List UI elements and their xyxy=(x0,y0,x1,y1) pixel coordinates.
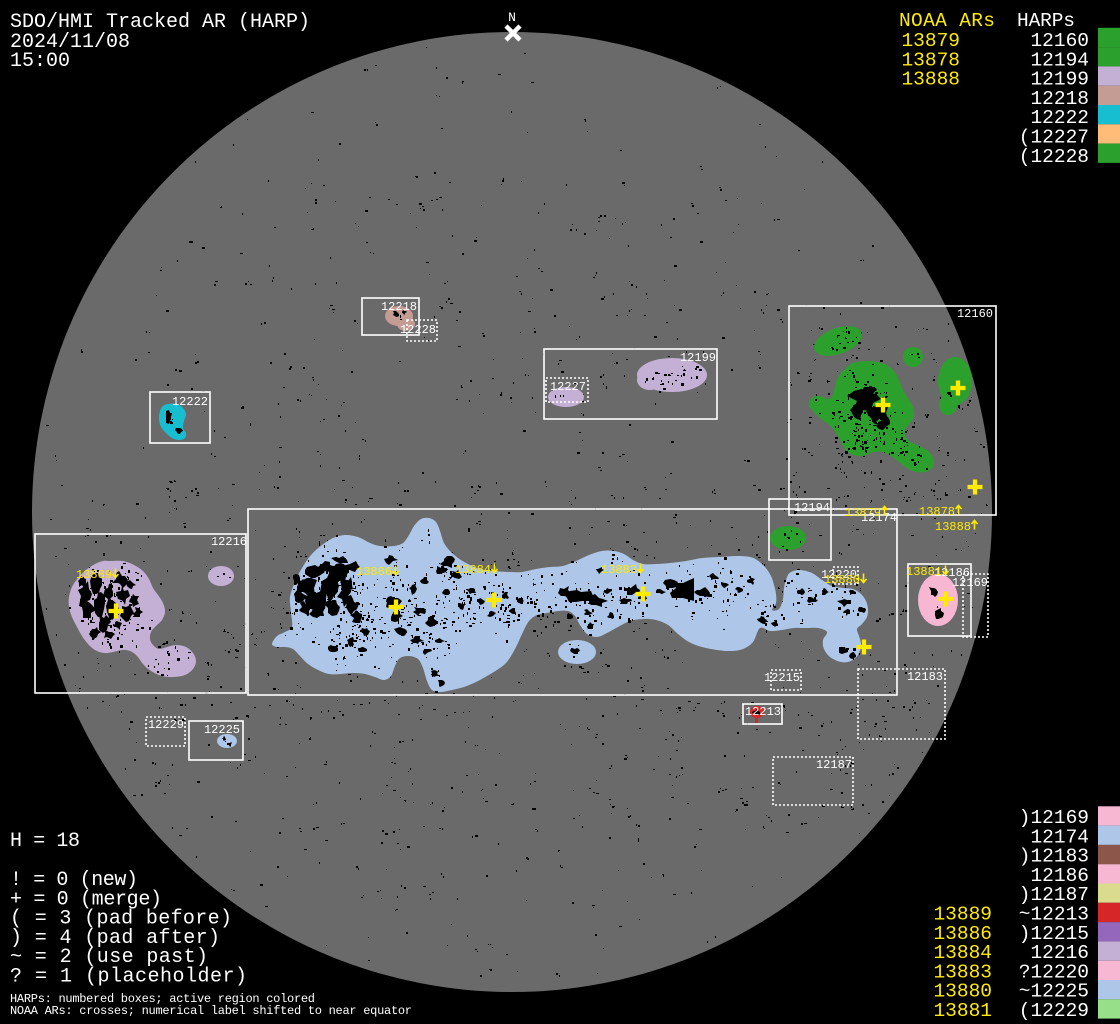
svg-text:13886: 13886 xyxy=(356,565,392,579)
svg-text:13888: 13888 xyxy=(901,69,960,91)
svg-text:12169: 12169 xyxy=(952,576,988,590)
svg-text:? = 1 (placeholder): ? = 1 (placeholder) xyxy=(10,966,247,989)
svg-text:12183: 12183 xyxy=(907,670,943,684)
svg-text:12222: 12222 xyxy=(172,395,208,409)
svg-text:12160: 12160 xyxy=(957,307,993,321)
svg-text:12228: 12228 xyxy=(400,323,436,337)
svg-text:13880: 13880 xyxy=(824,573,860,587)
svg-text:(12229: (12229 xyxy=(1019,1000,1089,1022)
svg-text:12229: 12229 xyxy=(148,718,184,732)
svg-text:13883: 13883 xyxy=(601,563,637,577)
svg-text:12218: 12218 xyxy=(381,300,417,314)
svg-text:12199: 12199 xyxy=(680,351,716,365)
svg-text:12213: 12213 xyxy=(745,705,781,719)
svg-text:13879: 13879 xyxy=(845,506,881,520)
svg-text:N: N xyxy=(508,10,516,25)
svg-text:13884: 13884 xyxy=(455,563,491,577)
svg-text:12227: 12227 xyxy=(550,380,586,394)
svg-text:15:00: 15:00 xyxy=(10,50,70,73)
svg-text:HARPs: HARPs xyxy=(1017,10,1075,32)
svg-text:12215: 12215 xyxy=(764,671,800,685)
svg-text:13881: 13881 xyxy=(906,565,942,579)
svg-text:(12228: (12228 xyxy=(1019,146,1089,168)
svg-text:12225: 12225 xyxy=(204,723,240,737)
svg-text:13889: 13889 xyxy=(76,568,112,582)
svg-text:H = 18: H = 18 xyxy=(10,830,80,853)
svg-text:12194: 12194 xyxy=(794,501,830,515)
svg-text:13878: 13878 xyxy=(919,505,955,519)
svg-text:13888: 13888 xyxy=(935,520,971,534)
svg-text:12216: 12216 xyxy=(211,535,247,549)
svg-text:NOAA ARs: NOAA ARs xyxy=(899,10,995,32)
svg-text:NOAA ARs: crosses; numerical l: NOAA ARs: crosses; numerical label shift… xyxy=(10,1004,412,1018)
svg-text:12187: 12187 xyxy=(816,758,852,772)
svg-text:13881: 13881 xyxy=(933,1000,992,1022)
